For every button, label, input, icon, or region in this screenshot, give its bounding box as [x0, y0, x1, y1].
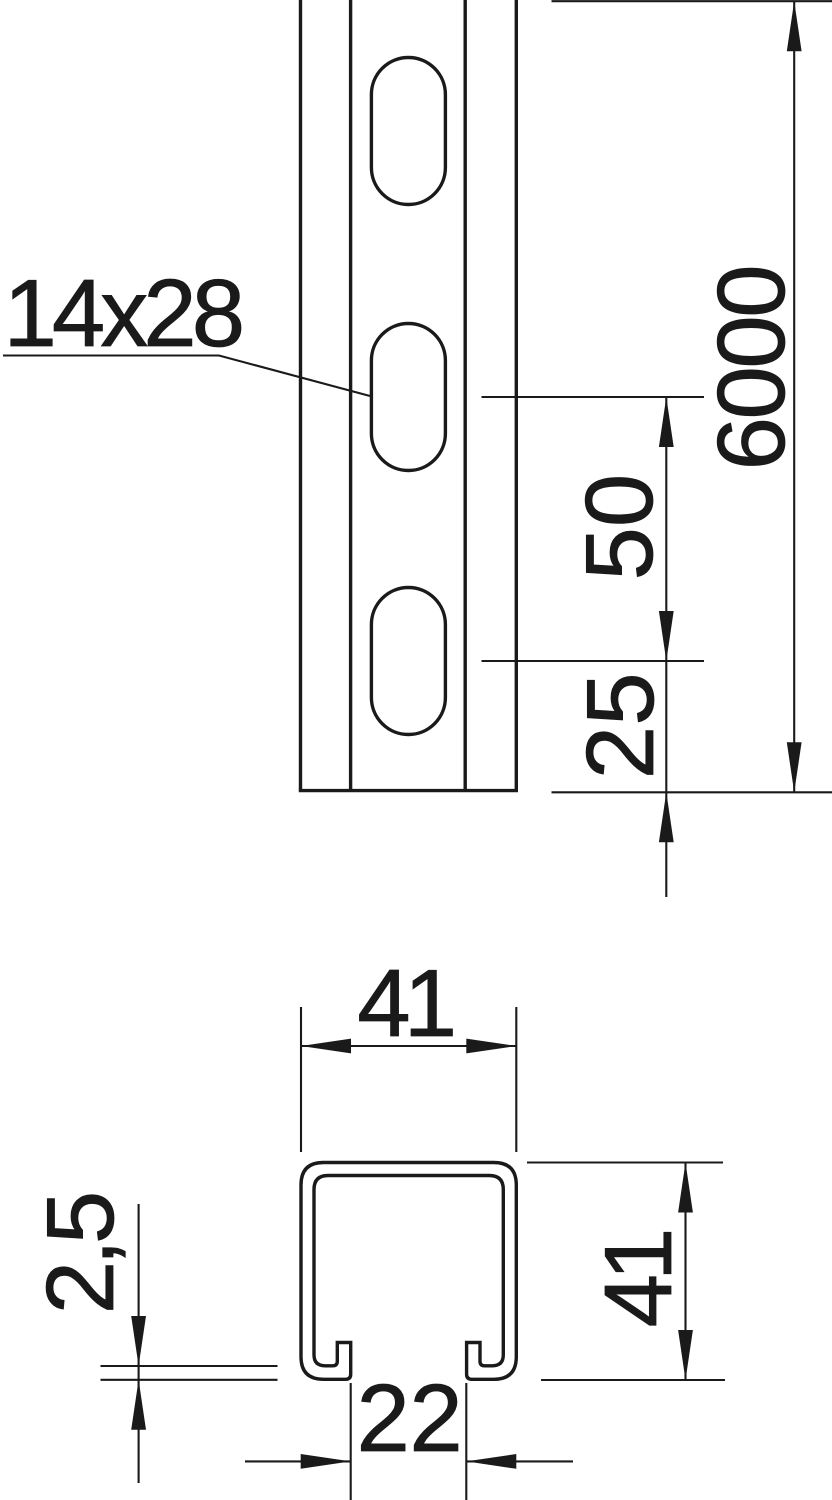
svg-text:22: 22 [357, 1365, 463, 1472]
svg-text:2,5: 2,5 [27, 1194, 134, 1314]
svg-text:6000: 6000 [698, 267, 805, 471]
svg-text:14x28: 14x28 [4, 260, 242, 367]
svg-text:41: 41 [585, 1232, 692, 1327]
svg-text:25: 25 [567, 672, 674, 779]
svg-text:50: 50 [566, 474, 673, 581]
svg-text:41: 41 [357, 950, 452, 1057]
